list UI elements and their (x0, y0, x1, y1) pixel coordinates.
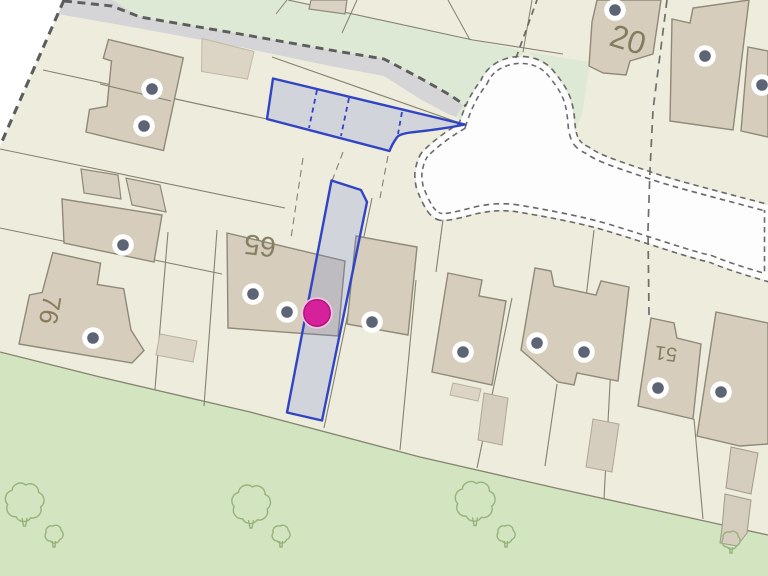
svg-text:65: 65 (242, 227, 277, 263)
svg-text:76: 76 (33, 293, 68, 327)
svg-text:51: 51 (654, 341, 679, 366)
